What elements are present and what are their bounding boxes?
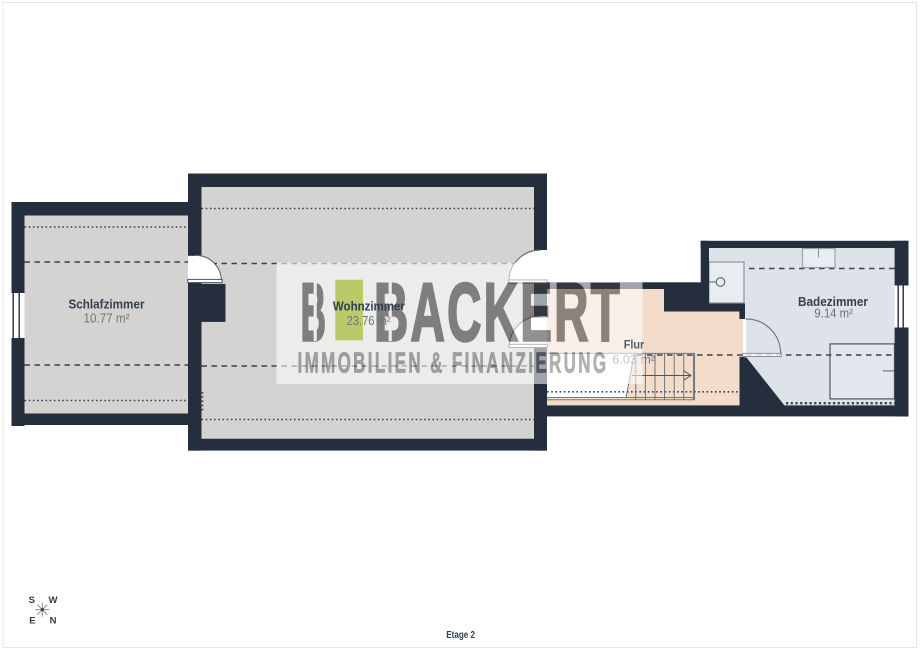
svg-text:10.77 m²: 10.77 m² xyxy=(84,312,130,326)
svg-text:Etage 2: Etage 2 xyxy=(446,630,475,641)
svg-text:B: B xyxy=(301,267,327,359)
svg-text:Wohnzimmer: Wohnzimmer xyxy=(333,299,405,314)
svg-text:S: S xyxy=(29,595,35,606)
svg-text:N: N xyxy=(50,616,57,627)
svg-text:E: E xyxy=(29,616,35,627)
svg-text:W: W xyxy=(49,595,58,606)
svg-text:Schlafzimmer: Schlafzimmer xyxy=(69,297,145,312)
svg-text:BACKERT: BACKERT xyxy=(374,267,622,359)
svg-text:Flur: Flur xyxy=(624,340,645,352)
svg-text:IMMOBILIEN & FINANZIERUNG: IMMOBILIEN & FINANZIERUNG xyxy=(298,348,609,380)
svg-text:9.14 m²: 9.14 m² xyxy=(814,307,853,321)
svg-text:23.76 m²: 23.76 m² xyxy=(347,314,391,328)
